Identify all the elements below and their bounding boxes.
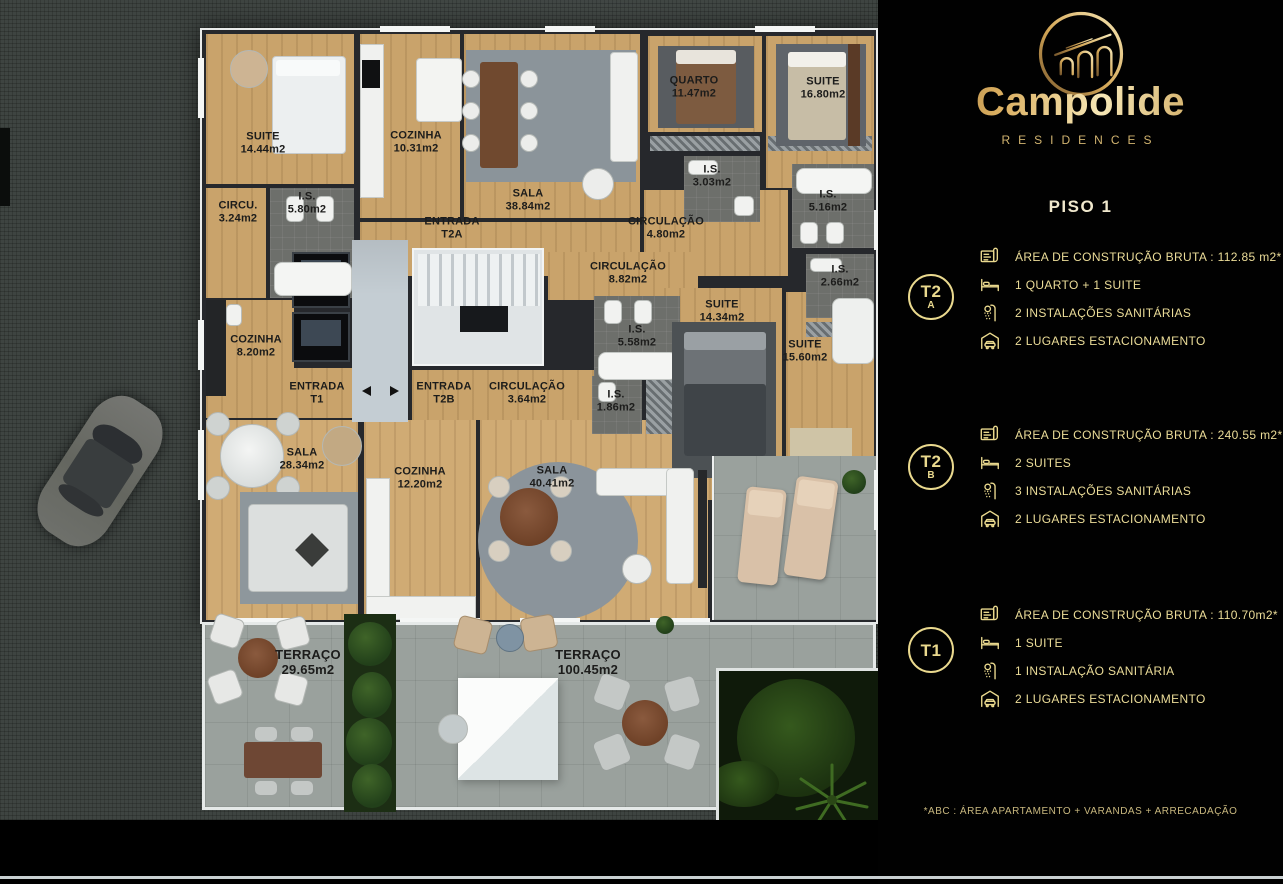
dining-chair [520, 102, 538, 120]
unit-specs: ÁREA DE CONSTRUÇÃO BRUTA : 112.85 m2* 1 … [978, 248, 1282, 360]
dining-chair [520, 70, 538, 88]
floor-title: PISO 1 [878, 197, 1283, 217]
spec-text: ÁREA DE CONSTRUÇÃO BRUTA : 240.55 m2* [1015, 428, 1282, 442]
parked-car [25, 384, 175, 558]
terrace-round-table [622, 700, 668, 746]
brand-tagline: RESIDENCES [878, 133, 1283, 147]
common-hallway [352, 240, 408, 422]
garage-icon [978, 329, 1002, 353]
page: SUITE14.44m2COZINHA10.31m2SALA38.84m2QUA… [0, 0, 1283, 884]
spec-text: 2 SUITES [1015, 456, 1071, 470]
dining-chair [462, 102, 480, 120]
wardrobe [650, 136, 760, 151]
spec-text: ÁREA DE CONSTRUÇÃO BRUTA : 110.70m2* [1015, 608, 1278, 622]
chair [488, 540, 510, 562]
spec-row: ÁREA DE CONSTRUÇÃO BRUTA : 112.85 m2* [978, 248, 1282, 266]
plant [352, 672, 392, 718]
bathtub [796, 168, 872, 194]
dining-chair [462, 134, 480, 152]
chair [206, 412, 230, 436]
window [755, 26, 815, 32]
spec-row: 2 LUGARES ESTACIONAMENTO [978, 510, 1282, 528]
blueprint-icon [978, 423, 1002, 447]
room-circu [206, 188, 266, 298]
unit-badge-t2a: T2 A [908, 274, 954, 320]
dining-chair [520, 134, 538, 152]
toilet [598, 382, 616, 402]
terrace-chair [290, 726, 314, 742]
bed-icon [978, 273, 1002, 297]
info-panel: Campolide RESIDENCES PISO 1 T2 A ÁREA DE… [878, 0, 1283, 884]
entry-arrow-right [390, 386, 399, 396]
fire-pit [438, 714, 468, 744]
armchair [582, 168, 614, 200]
elevator-cab [301, 320, 341, 346]
spec-row: 3 INSTALAÇÕES SANITÁRIAS [978, 482, 1282, 500]
bed-pillows [684, 332, 766, 350]
badge-main: T2 [921, 453, 942, 470]
toilet [604, 300, 622, 324]
footnote: *ABC : ÁREA APARTAMENTO + VARANDAS + ARR… [878, 806, 1283, 817]
window [545, 26, 595, 32]
plant [346, 718, 392, 766]
sink [810, 258, 842, 272]
brand-name: Campolide [878, 80, 1283, 125]
hedge-planter [344, 614, 396, 812]
spec-row: 2 LUGARES ESTACIONAMENTO [978, 332, 1282, 350]
tv-console [698, 470, 707, 588]
spec-text: ÁREA DE CONSTRUÇÃO BRUTA : 112.85 m2* [1015, 250, 1282, 264]
chair [550, 476, 572, 498]
entry-arrow-left [362, 386, 371, 396]
cooktop [362, 60, 380, 88]
chair [276, 412, 300, 436]
dining-table [480, 62, 518, 168]
dining-chair [462, 70, 480, 88]
chaise-sofa [832, 298, 874, 364]
spec-text: 2 LUGARES ESTACIONAMENTO [1015, 692, 1206, 706]
chair [550, 540, 572, 562]
toilet [800, 222, 818, 244]
toilet [286, 196, 304, 222]
bed-icon [978, 631, 1002, 655]
bathtub [274, 262, 352, 296]
window [198, 58, 204, 118]
headboard [848, 44, 860, 146]
round-table [220, 424, 284, 488]
spec-row: 2 SUITES [978, 454, 1282, 472]
spec-text: 2 LUGARES ESTACIONAMENTO [1015, 334, 1206, 348]
spec-text: 1 SUITE [1015, 636, 1063, 650]
unit-badge-t1: T1 [908, 627, 954, 673]
spec-text: 3 INSTALAÇÕES SANITÁRIAS [1015, 484, 1191, 498]
window [198, 430, 204, 500]
sofa-l-shape [666, 468, 694, 584]
spec-row: 2 INSTALAÇÕES SANITÁRIAS [978, 304, 1282, 322]
chair [488, 476, 510, 498]
shower-icon [978, 659, 1002, 683]
blueprint-icon [978, 603, 1002, 627]
shower-icon [978, 479, 1002, 503]
unit-specs: ÁREA DE CONSTRUÇÃO BRUTA : 110.70m2* 1 S… [978, 606, 1278, 718]
sink [688, 160, 718, 175]
toilet [316, 196, 334, 222]
terrace-dining-table [244, 742, 322, 778]
garage-icon [978, 687, 1002, 711]
spec-text: 1 INSTALAÇÃO SANITÁRIA [1015, 664, 1175, 678]
pergola-canopy [458, 678, 558, 780]
shrub [716, 761, 779, 807]
spec-text: 2 INSTALAÇÕES SANITÁRIAS [1015, 306, 1191, 320]
side-table [496, 624, 524, 652]
kitchen-sink [226, 304, 242, 326]
terrace-chair [254, 726, 278, 742]
window [380, 26, 450, 32]
pouf [622, 554, 652, 584]
kitchen-counter-dark [206, 300, 226, 396]
spec-text: 1 QUARTO + 1 SUITE [1015, 278, 1141, 292]
armchair [230, 50, 268, 88]
toilet [634, 300, 652, 324]
unit-specs: ÁREA DE CONSTRUÇÃO BRUTA : 240.55 m2* 2 … [978, 426, 1282, 538]
pavement-notch [0, 128, 10, 206]
spec-row: 2 LUGARES ESTACIONAMENTO [978, 690, 1278, 708]
plant [352, 764, 392, 808]
spec-text: 2 LUGARES ESTACIONAMENTO [1015, 512, 1206, 526]
blueprint-icon [978, 245, 1002, 269]
terrace-plant [656, 616, 674, 634]
bed-pillows [276, 60, 340, 76]
spec-row: 1 QUARTO + 1 SUITE [978, 276, 1282, 294]
badge-main: T1 [921, 642, 942, 659]
bed-pillows [788, 52, 846, 67]
bed-pillows [676, 50, 736, 64]
toilet [826, 222, 844, 244]
shower-icon [978, 301, 1002, 325]
elevator-shaft [292, 312, 350, 362]
terrace-chair [290, 780, 314, 796]
plant [348, 622, 392, 666]
badge-main: T2 [921, 283, 942, 300]
badge-sub: B [927, 471, 934, 481]
unit-badge-t2b: T2 B [908, 444, 954, 490]
rattan-chair [322, 426, 362, 466]
spec-row: ÁREA DE CONSTRUÇÃO BRUTA : 240.55 m2* [978, 426, 1282, 444]
window [198, 320, 204, 370]
toilet [734, 196, 754, 216]
garage-icon [978, 507, 1002, 531]
corridor-entrada-t1 [206, 368, 360, 418]
spec-row: 1 SUITE [978, 634, 1278, 652]
bathtub [598, 352, 678, 380]
bed-blanket [684, 384, 766, 456]
kitchen-island [416, 58, 462, 122]
stair-flight [418, 254, 540, 306]
badge-sub: A [927, 301, 934, 311]
bed-icon [978, 451, 1002, 475]
sofa [610, 52, 638, 162]
corridor-entrada-t2b [412, 370, 608, 420]
terrace-chair [254, 780, 278, 796]
chair [206, 476, 230, 500]
terrace-round-table [238, 638, 278, 678]
spec-row: ÁREA DE CONSTRUÇÃO BRUTA : 110.70m2* [978, 606, 1278, 624]
stair-landing [460, 306, 508, 332]
round-dining-table [500, 488, 558, 546]
stairwell [412, 248, 544, 366]
terrace-armchair [519, 613, 558, 652]
bottom-edge-line [0, 876, 1283, 879]
terrace-plant [842, 470, 866, 494]
spec-row: 1 INSTALAÇÃO SANITÁRIA [978, 662, 1278, 680]
